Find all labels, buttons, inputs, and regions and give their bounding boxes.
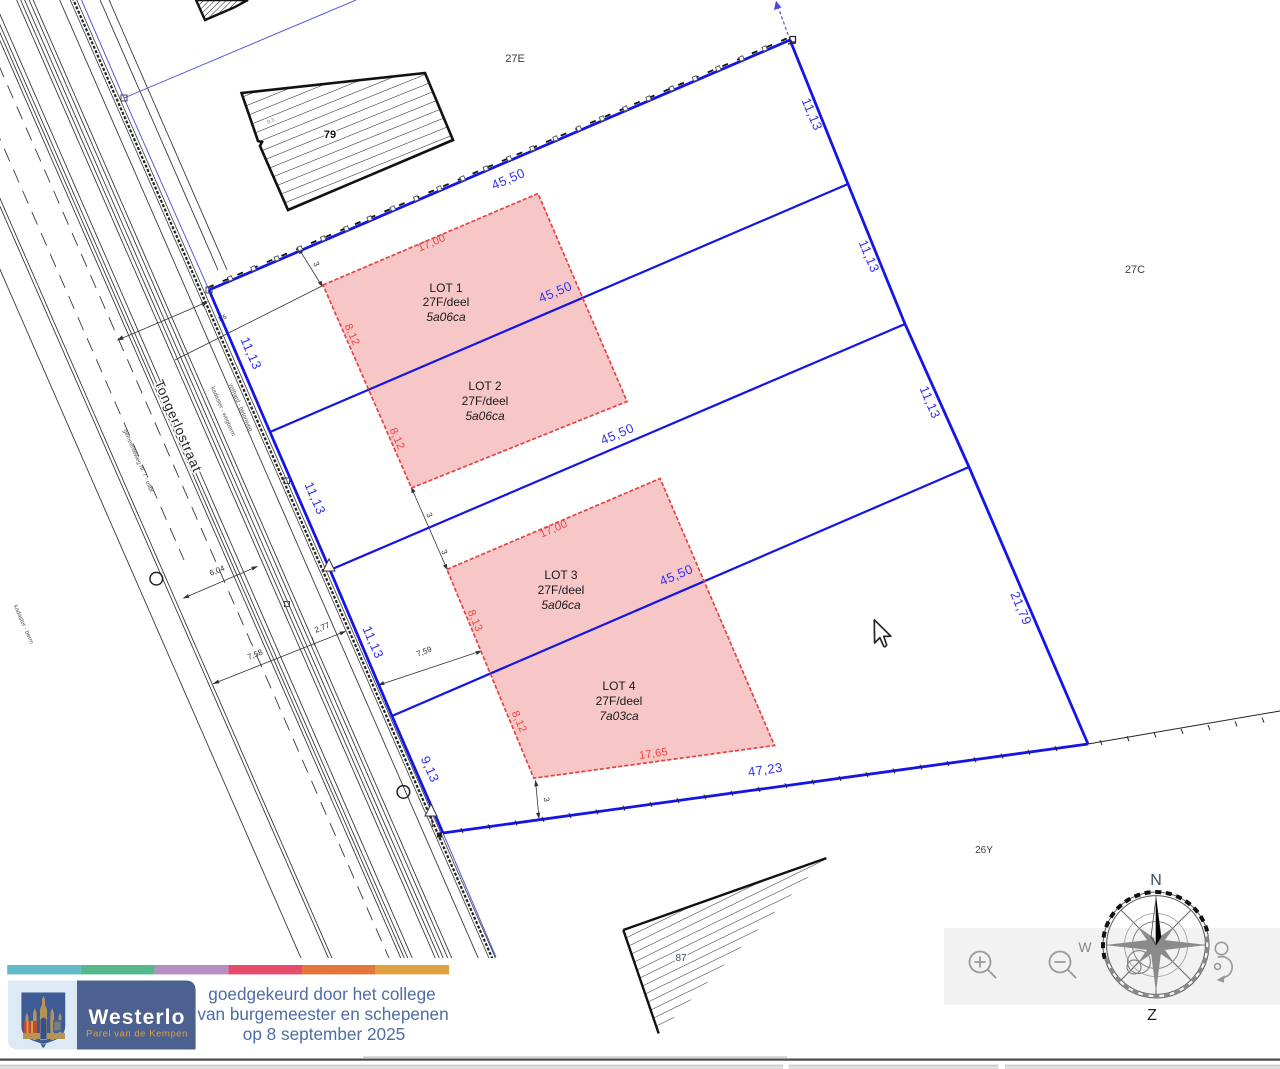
svg-text:W: W (1078, 939, 1092, 955)
svg-text:5a06ca: 5a06ca (465, 409, 505, 423)
svg-text:LOT 1: LOT 1 (429, 281, 462, 295)
svg-text:Z: Z (1147, 1007, 1157, 1024)
svg-text:7a03ca: 7a03ca (599, 709, 639, 723)
svg-text:Parel van de Kempen: Parel van de Kempen (86, 1029, 188, 1040)
svg-text:5a06ca: 5a06ca (426, 310, 466, 324)
svg-text:79: 79 (324, 129, 336, 141)
svg-text:26Y: 26Y (975, 845, 993, 856)
svg-text:27F/deel: 27F/deel (538, 583, 585, 597)
svg-text:27F/deel: 27F/deel (462, 394, 509, 408)
svg-text:van burgemeester en schepenen: van burgemeester en schepenen (197, 1004, 448, 1024)
svg-text:5a06ca: 5a06ca (541, 598, 581, 612)
svg-text:op 8 september 2025: op 8 september 2025 (243, 1024, 405, 1044)
svg-text:LOT 3: LOT 3 (544, 568, 577, 582)
svg-text:87: 87 (675, 953, 687, 964)
svg-text:goedgekeurd door het college: goedgekeurd door het college (208, 984, 435, 1004)
svg-text:27F/deel: 27F/deel (423, 295, 470, 309)
svg-text:LOT 2: LOT 2 (468, 379, 501, 393)
svg-text:Westerlo: Westerlo (88, 1006, 185, 1029)
svg-text:27C: 27C (1125, 264, 1145, 276)
svg-text:N: N (1150, 872, 1162, 889)
svg-text:27F/deel: 27F/deel (596, 694, 643, 708)
svg-text:LOT 4: LOT 4 (602, 679, 635, 693)
svg-text:27E: 27E (505, 53, 525, 65)
